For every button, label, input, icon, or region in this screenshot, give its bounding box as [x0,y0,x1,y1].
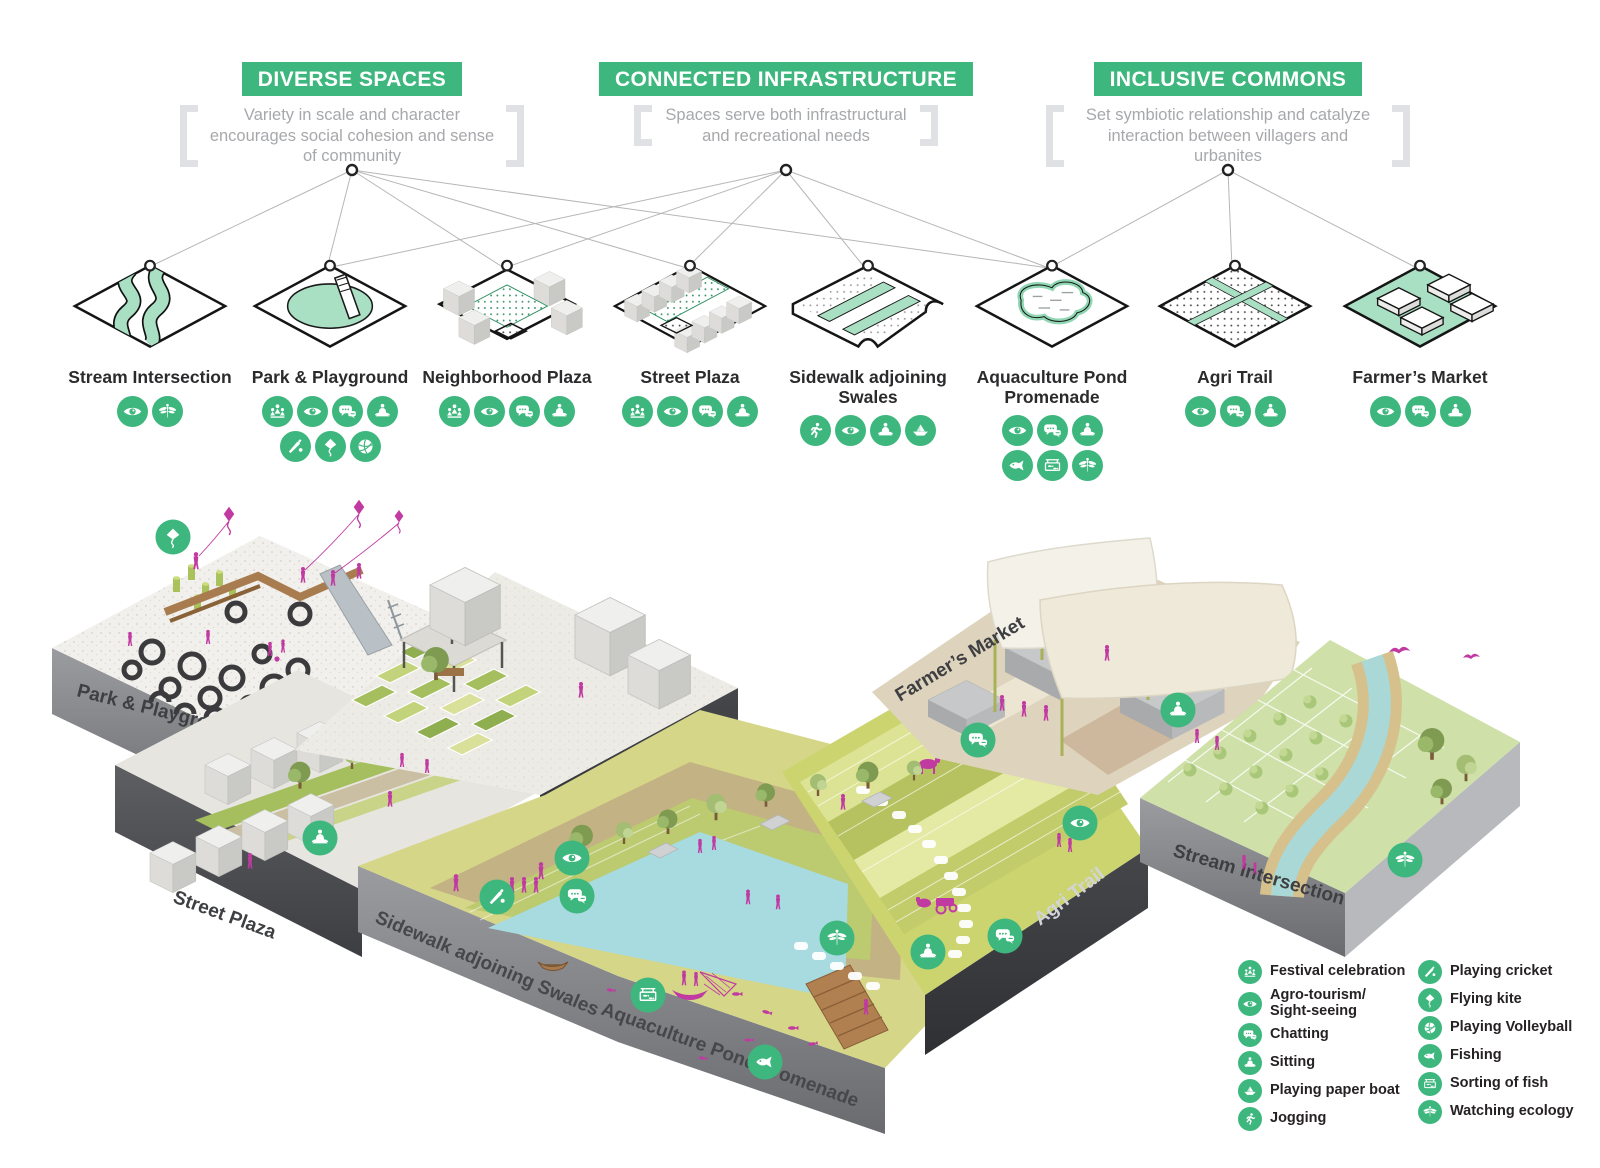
birds [1389,647,1480,659]
legend-label: Playing cricket [1450,964,1552,980]
legend-item: Sorting of fish [1418,1072,1586,1096]
legend-item: Jogging [1238,1107,1406,1131]
ecology-icon [1388,843,1423,878]
activity-legend: Festival celebration Agro-tourism/ Sight… [1238,960,1586,1131]
kite-icon [1418,988,1442,1012]
bracket-right-icon [506,105,524,167]
fishing-icon [1002,450,1033,481]
tile-street-plaza: Street Plaza [597,256,783,427]
sitting-icon [1440,396,1471,427]
legend-label: Playing Volleyball [1450,1020,1572,1036]
jogging-icon [800,415,831,446]
ecology-icon [1072,450,1103,481]
sitting-icon [303,821,338,856]
principle-description: Spaces serve both infrastructural and re… [660,105,912,146]
sightseeing-icon [1185,396,1216,427]
volleyball-icon [1418,1016,1442,1040]
sitting-icon [367,396,398,427]
principle-diverse-spaces: DIVERSE SPACES Variety in scale and char… [180,62,524,167]
sightseeing-icon [555,841,590,876]
legend-label: Festival celebration [1270,964,1405,980]
tile-activity-icons [775,415,961,446]
tile-activity-icons [996,415,1108,481]
ecology-icon [152,396,183,427]
chatting-icon [509,396,540,427]
sightseeing-icon [297,396,328,427]
legend-label: Fishing [1450,1048,1502,1064]
tile-activity-icons [1327,396,1513,427]
legend-item: Chatting [1238,1023,1406,1047]
sightseeing-icon [474,396,505,427]
legend-item: Festival celebration [1238,960,1406,984]
tile-aquaculture-pond: Aquaculture Pond Promenade [959,256,1145,481]
tile-label: Street Plaza [597,368,783,388]
bracket-left-icon [180,105,198,167]
legend-column-left: Festival celebration Agro-tourism/ Sight… [1238,960,1406,1131]
tile-agri-trail: Agri Trail [1142,256,1328,427]
principle-inclusive-commons: INCLUSIVE COMMONS Set symbiotic relation… [1046,62,1410,167]
infographic-page: { "colors":{"accent_green":"#3db77d","mi… [0,0,1600,1168]
sitting-icon [870,415,901,446]
cricket-icon [480,880,515,915]
festival-icon [1238,960,1262,984]
fishing-icon [748,1045,783,1080]
legend-label: Playing paper boat [1270,1083,1400,1099]
festival-icon [622,396,653,427]
tile-activity-icons [597,396,783,427]
sitting-icon [544,396,575,427]
legend-label: Sorting of fish [1450,1076,1548,1092]
sitting-icon [727,396,758,427]
fishing-icon [1418,1044,1442,1068]
tile-farmers-market: Farmer’s Market [1327,256,1513,427]
volleyball-icon [350,431,381,462]
festival-icon [439,396,470,427]
principle-connected-infrastructure: CONNECTED INFRASTRUCTURE Spaces serve bo… [599,62,973,146]
sitting-icon [1072,415,1103,446]
legend-label: Sitting [1270,1055,1315,1071]
cricket-icon [1418,960,1442,984]
tile-diagram-pond [962,256,1142,360]
tile-label: Neighborhood Plaza [414,368,600,388]
ecology-icon [1418,1100,1442,1124]
tile-park-playground: Park & Playground [237,256,423,462]
bracket-left-icon [634,105,652,146]
sightseeing-icon [657,396,688,427]
sightseeing-icon [1002,415,1033,446]
tile-diagram-sidewalk [778,256,958,360]
principle-title: CONNECTED INFRASTRUCTURE [599,62,973,96]
legend-label: Watching ecology [1450,1104,1574,1120]
tile-activity-icons [414,396,600,427]
festival-icon [262,396,293,427]
tile-diagram-stream [60,256,240,360]
principle-description: Set symbiotic relationship and catalyze … [1072,105,1384,167]
chatting-icon [692,396,723,427]
legend-item: Agro-tourism/ Sight-seeing [1238,988,1406,1019]
chatting-icon [560,879,595,914]
legend-item: Flying kite [1418,988,1586,1012]
tile-label: Aquaculture Pond Promenade [959,368,1145,407]
sorting-icon [1418,1072,1442,1096]
kite-icon [315,431,346,462]
tile-activity-icons [1142,396,1328,427]
sightseeing-icon [1063,806,1098,841]
legend-item: Playing paper boat [1238,1079,1406,1103]
tile-diagram-park [240,256,420,360]
principle-title: DIVERSE SPACES [242,62,462,96]
tile-stream-intersection: Stream Intersection [57,256,243,427]
legend-item: Watching ecology [1418,1100,1586,1124]
tile-diagram-market [1330,256,1510,360]
legend-label: Jogging [1270,1111,1326,1127]
tile-label: Sidewalk adjoining Swales [775,368,961,407]
legend-item: Playing Volleyball [1418,1016,1586,1040]
chatting-icon [332,396,363,427]
sitting-icon [911,935,946,970]
tile-label: Farmer’s Market [1327,368,1513,388]
tile-diagram-agri [1145,256,1325,360]
chatting-icon [1405,396,1436,427]
bracket-right-icon [1392,105,1410,167]
sightseeing-icon [1238,992,1262,1016]
principle-title: INCLUSIVE COMMONS [1094,62,1363,96]
tile-diagram-street [600,256,780,360]
ecology-icon [820,921,855,956]
paperboat-icon [1238,1079,1262,1103]
legend-item: Fishing [1418,1044,1586,1068]
bracket-right-icon [920,105,938,146]
tile-neighborhood-plaza: Neighborhood Plaza [414,256,600,427]
principle-description: Variety in scale and character encourage… [206,105,498,167]
legend-label: Agro-tourism/ Sight-seeing [1270,988,1382,1019]
paperboat-icon [905,415,936,446]
legend-item: Sitting [1238,1051,1406,1075]
legend-label: Chatting [1270,1027,1329,1043]
tile-sidewalk-swales: Sidewalk adjoining Swales [775,256,961,446]
tile-activity-icons [57,396,243,427]
sorting-icon [1037,450,1068,481]
bracket-left-icon [1046,105,1064,167]
chatting-icon [1220,396,1251,427]
sorting-icon [631,978,666,1013]
chatting-icon [961,723,996,758]
kite-icon [156,520,191,555]
chatting-icon [1238,1023,1262,1047]
chatting-icon [988,919,1023,954]
tile-label: Park & Playground [237,368,423,388]
legend-label: Flying kite [1450,992,1522,1008]
jogging-icon [1238,1107,1262,1131]
tile-label: Stream Intersection [57,368,243,388]
sitting-icon [1255,396,1286,427]
tile-diagram-neighborhood [417,256,597,360]
sightseeing-icon [117,396,148,427]
chatting-icon [1037,415,1068,446]
legend-column-right: Playing cricket Flying kite Playing Voll… [1418,960,1586,1131]
tile-activity-icons [254,396,406,462]
sitting-icon [1238,1051,1262,1075]
sightseeing-icon [1370,396,1401,427]
sightseeing-icon [835,415,866,446]
cricket-icon [280,431,311,462]
legend-item: Playing cricket [1418,960,1586,984]
tile-label: Agri Trail [1142,368,1328,388]
sitting-icon [1161,693,1196,728]
